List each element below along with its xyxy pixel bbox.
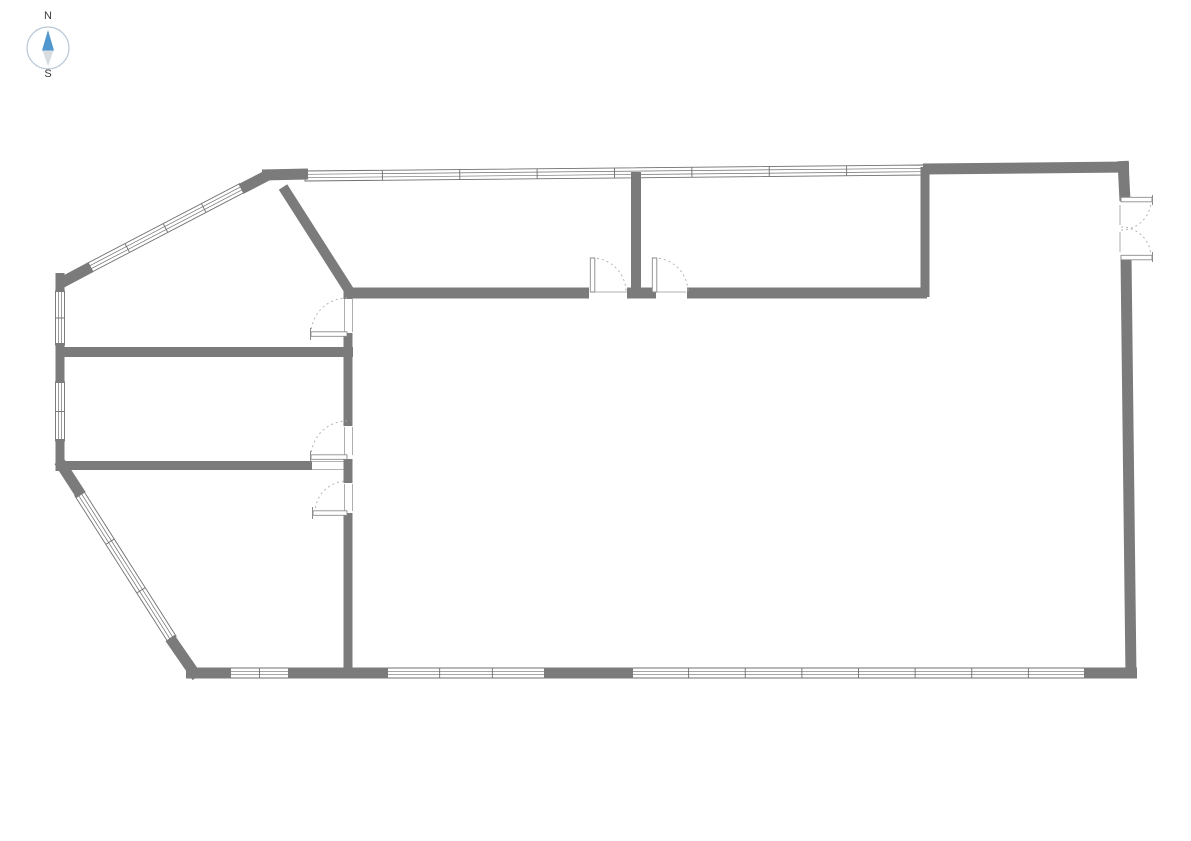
compass-north-label: N bbox=[41, 10, 55, 22]
floor-plan-canvas: N S bbox=[0, 0, 1191, 841]
wall-segment bbox=[1084, 668, 1137, 679]
wall-segment bbox=[344, 287, 353, 299]
wall-segment bbox=[1121, 256, 1137, 677]
wall-segment bbox=[344, 288, 589, 299]
door-leaf bbox=[1121, 197, 1152, 202]
window-segment bbox=[387, 668, 545, 678]
wall-segment bbox=[279, 184, 354, 294]
door-leaf bbox=[590, 258, 595, 292]
wall-segment bbox=[1118, 161, 1131, 202]
wall-segment bbox=[344, 333, 353, 426]
window-pane-line bbox=[78, 494, 171, 640]
door-leaf bbox=[1121, 255, 1152, 259]
door-leaf bbox=[652, 258, 657, 292]
wall-segment bbox=[58, 347, 353, 357]
wall-segment bbox=[921, 167, 930, 297]
door-swing-arc bbox=[592, 258, 626, 292]
wall-segment bbox=[631, 172, 641, 294]
wall-segment bbox=[544, 668, 633, 679]
door-leaf bbox=[311, 455, 347, 460]
floor-plan-svg bbox=[0, 0, 1191, 841]
wall-segment bbox=[344, 459, 353, 483]
window-pane-line bbox=[80, 492, 173, 638]
door-swing-arc bbox=[315, 481, 347, 513]
door-leaf bbox=[311, 332, 347, 337]
wall-segment bbox=[56, 461, 312, 470]
door-swing-arc bbox=[1121, 200, 1151, 230]
wall-segment bbox=[166, 635, 202, 680]
door-leaf bbox=[313, 511, 347, 516]
wall-segment bbox=[344, 513, 353, 678]
compass-south-label: S bbox=[41, 68, 55, 80]
wall-segment bbox=[288, 668, 388, 679]
wall-segment bbox=[687, 288, 927, 299]
wall-segment bbox=[239, 169, 273, 194]
door-swing-arc bbox=[654, 258, 688, 292]
door-swing-arc bbox=[1121, 227, 1151, 257]
door-swing-arc bbox=[311, 421, 347, 457]
door-swing-arc bbox=[311, 298, 347, 334]
wall-segment bbox=[923, 162, 1129, 175]
